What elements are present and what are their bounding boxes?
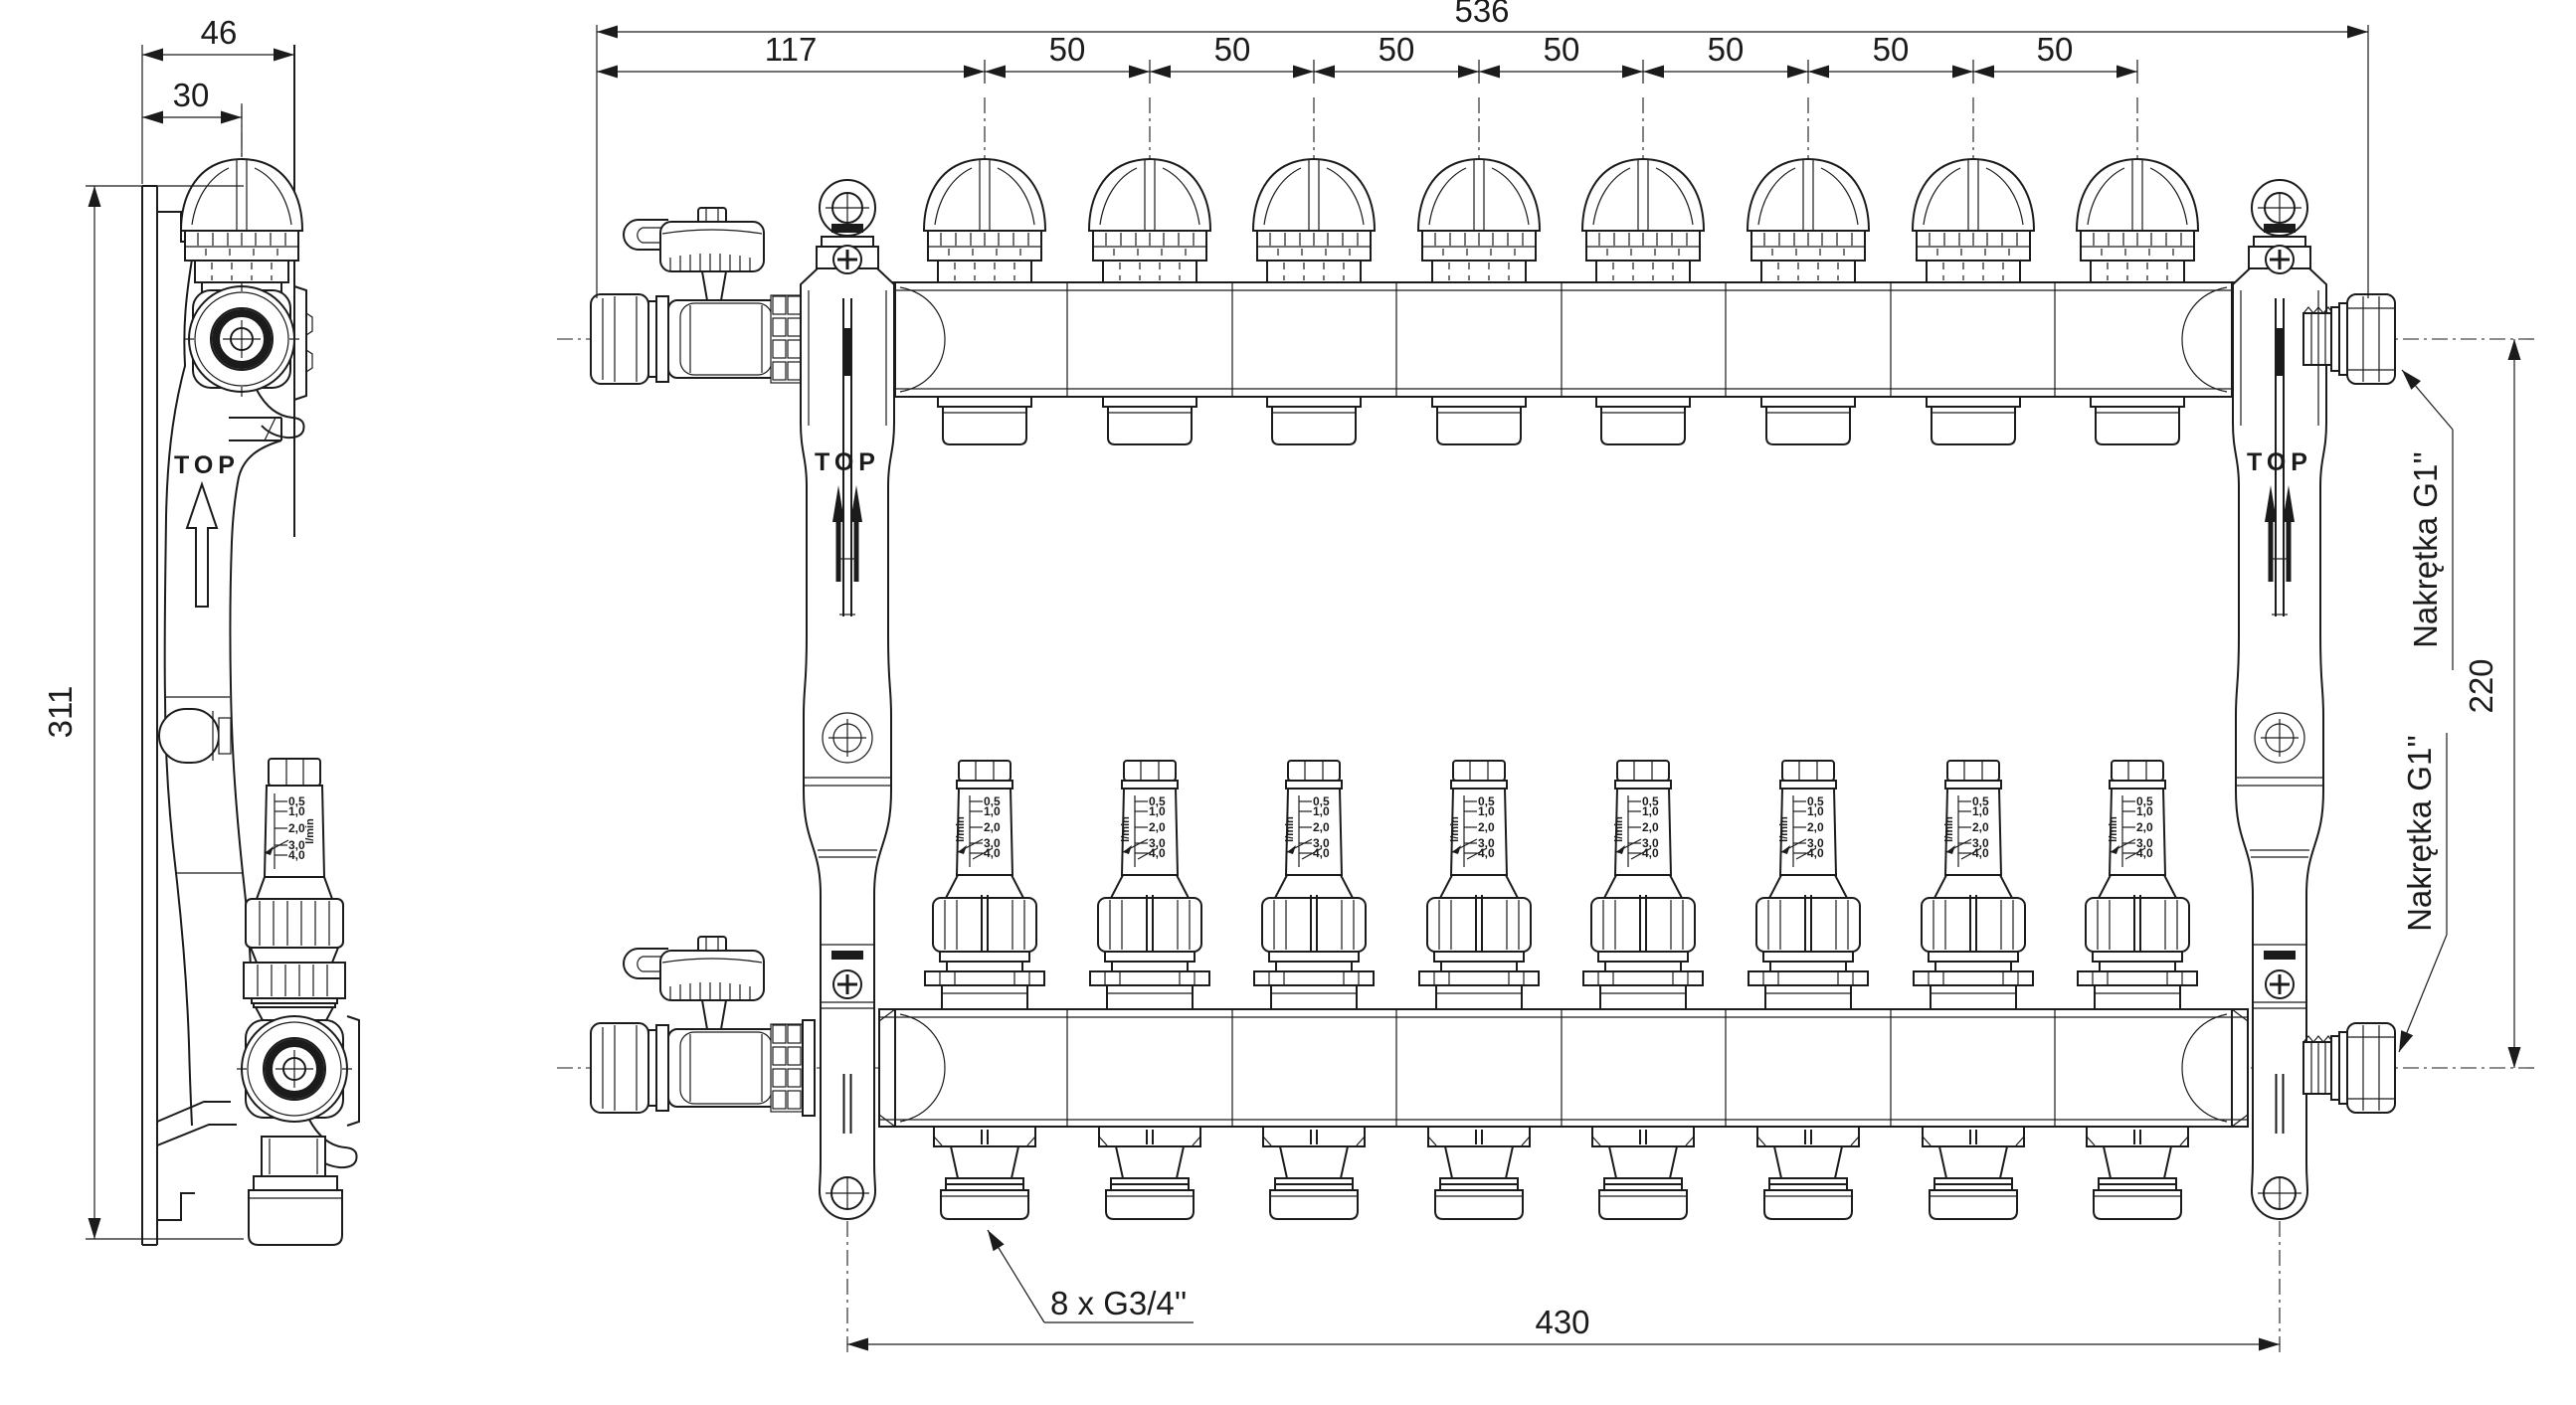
- dim-50-label: 50: [1379, 31, 1415, 68]
- dim-50-label: 50: [1708, 31, 1745, 68]
- lower-ball-valve: [591, 937, 815, 1116]
- upper-outlets-row: [938, 397, 2184, 444]
- outlets-thread-label: 8 x G3/4'': [1050, 1285, 1187, 1321]
- flow-scale-tick: 4,0: [288, 848, 305, 862]
- label-nut-lower: Nakrętka G1'': [2393, 733, 2447, 1055]
- side-top-marking: TOP: [174, 451, 240, 479]
- upper-ball-valve: [591, 208, 815, 387]
- lower-g1-nut: [2303, 1023, 2395, 1113]
- dim-50-label: 50: [1049, 31, 1086, 68]
- label-nut-upper: Nakrętka G1'': [2397, 366, 2453, 670]
- technical-drawing-page: 0,5 1,0 2,0 3,0 4,0 l/min: [0, 0, 2576, 1405]
- nut-g1-lower-label: Nakrętka G1'': [2401, 735, 2438, 932]
- upper-manifold-beam: [879, 282, 2248, 397]
- dim-50-label: 50: [1544, 31, 1580, 68]
- flow-scale-tick: 1,0: [288, 804, 305, 818]
- dim-30: 30: [142, 77, 242, 157]
- side-flow-meter: 0,5 1,0 2,0 3,0 4,0 l/min: [244, 759, 345, 1022]
- dim-50-label: 50: [2037, 31, 2074, 68]
- side-up-arrow-icon: [187, 484, 217, 607]
- vent-caps-row: [924, 159, 2198, 282]
- side-bottom-valve: [157, 1016, 359, 1167]
- dim-50-label: 50: [1214, 31, 1251, 68]
- flow-scale-tick: 2,0: [288, 821, 305, 835]
- dim-311-label: 311: [42, 686, 79, 739]
- manifold-technical-drawing: 0,5 1,0 2,0 3,0 4,0 l/min: [0, 0, 2576, 1405]
- label-outlets-g34: 8 x G3/4'': [982, 1227, 1194, 1322]
- flow-scale-unit: l/min: [304, 818, 316, 844]
- dim-46-label: 46: [201, 14, 238, 51]
- flow-meters-row: [925, 761, 2197, 1009]
- dim-50-label: 50: [1873, 31, 1910, 68]
- dim-430-label: 430: [1535, 1304, 1589, 1340]
- dim-30-label: 30: [173, 77, 210, 113]
- side-view: TOP 0,5 1,0 2,0: [42, 14, 359, 1245]
- dim-pitch-row: 117 50 50 50 50 50 50 50: [597, 31, 2137, 84]
- lower-manifold-beam: [879, 1009, 2248, 1127]
- dim-46: 46: [142, 14, 294, 184]
- dim-220: 220: [2463, 339, 2521, 1068]
- dim-536-label: 536: [1454, 0, 1509, 29]
- front-view: 536 117 50 50 50 50 50 50 50 220 4: [557, 0, 2534, 1354]
- dim-117-label: 117: [765, 31, 818, 68]
- nut-g1-upper-label: Nakrętka G1'': [2407, 451, 2444, 648]
- side-top-valve: [181, 103, 312, 438]
- dim-220-label: 220: [2463, 658, 2499, 713]
- side-bottom-outlet: [249, 1137, 342, 1245]
- loop-outlets-row: [934, 1127, 2188, 1219]
